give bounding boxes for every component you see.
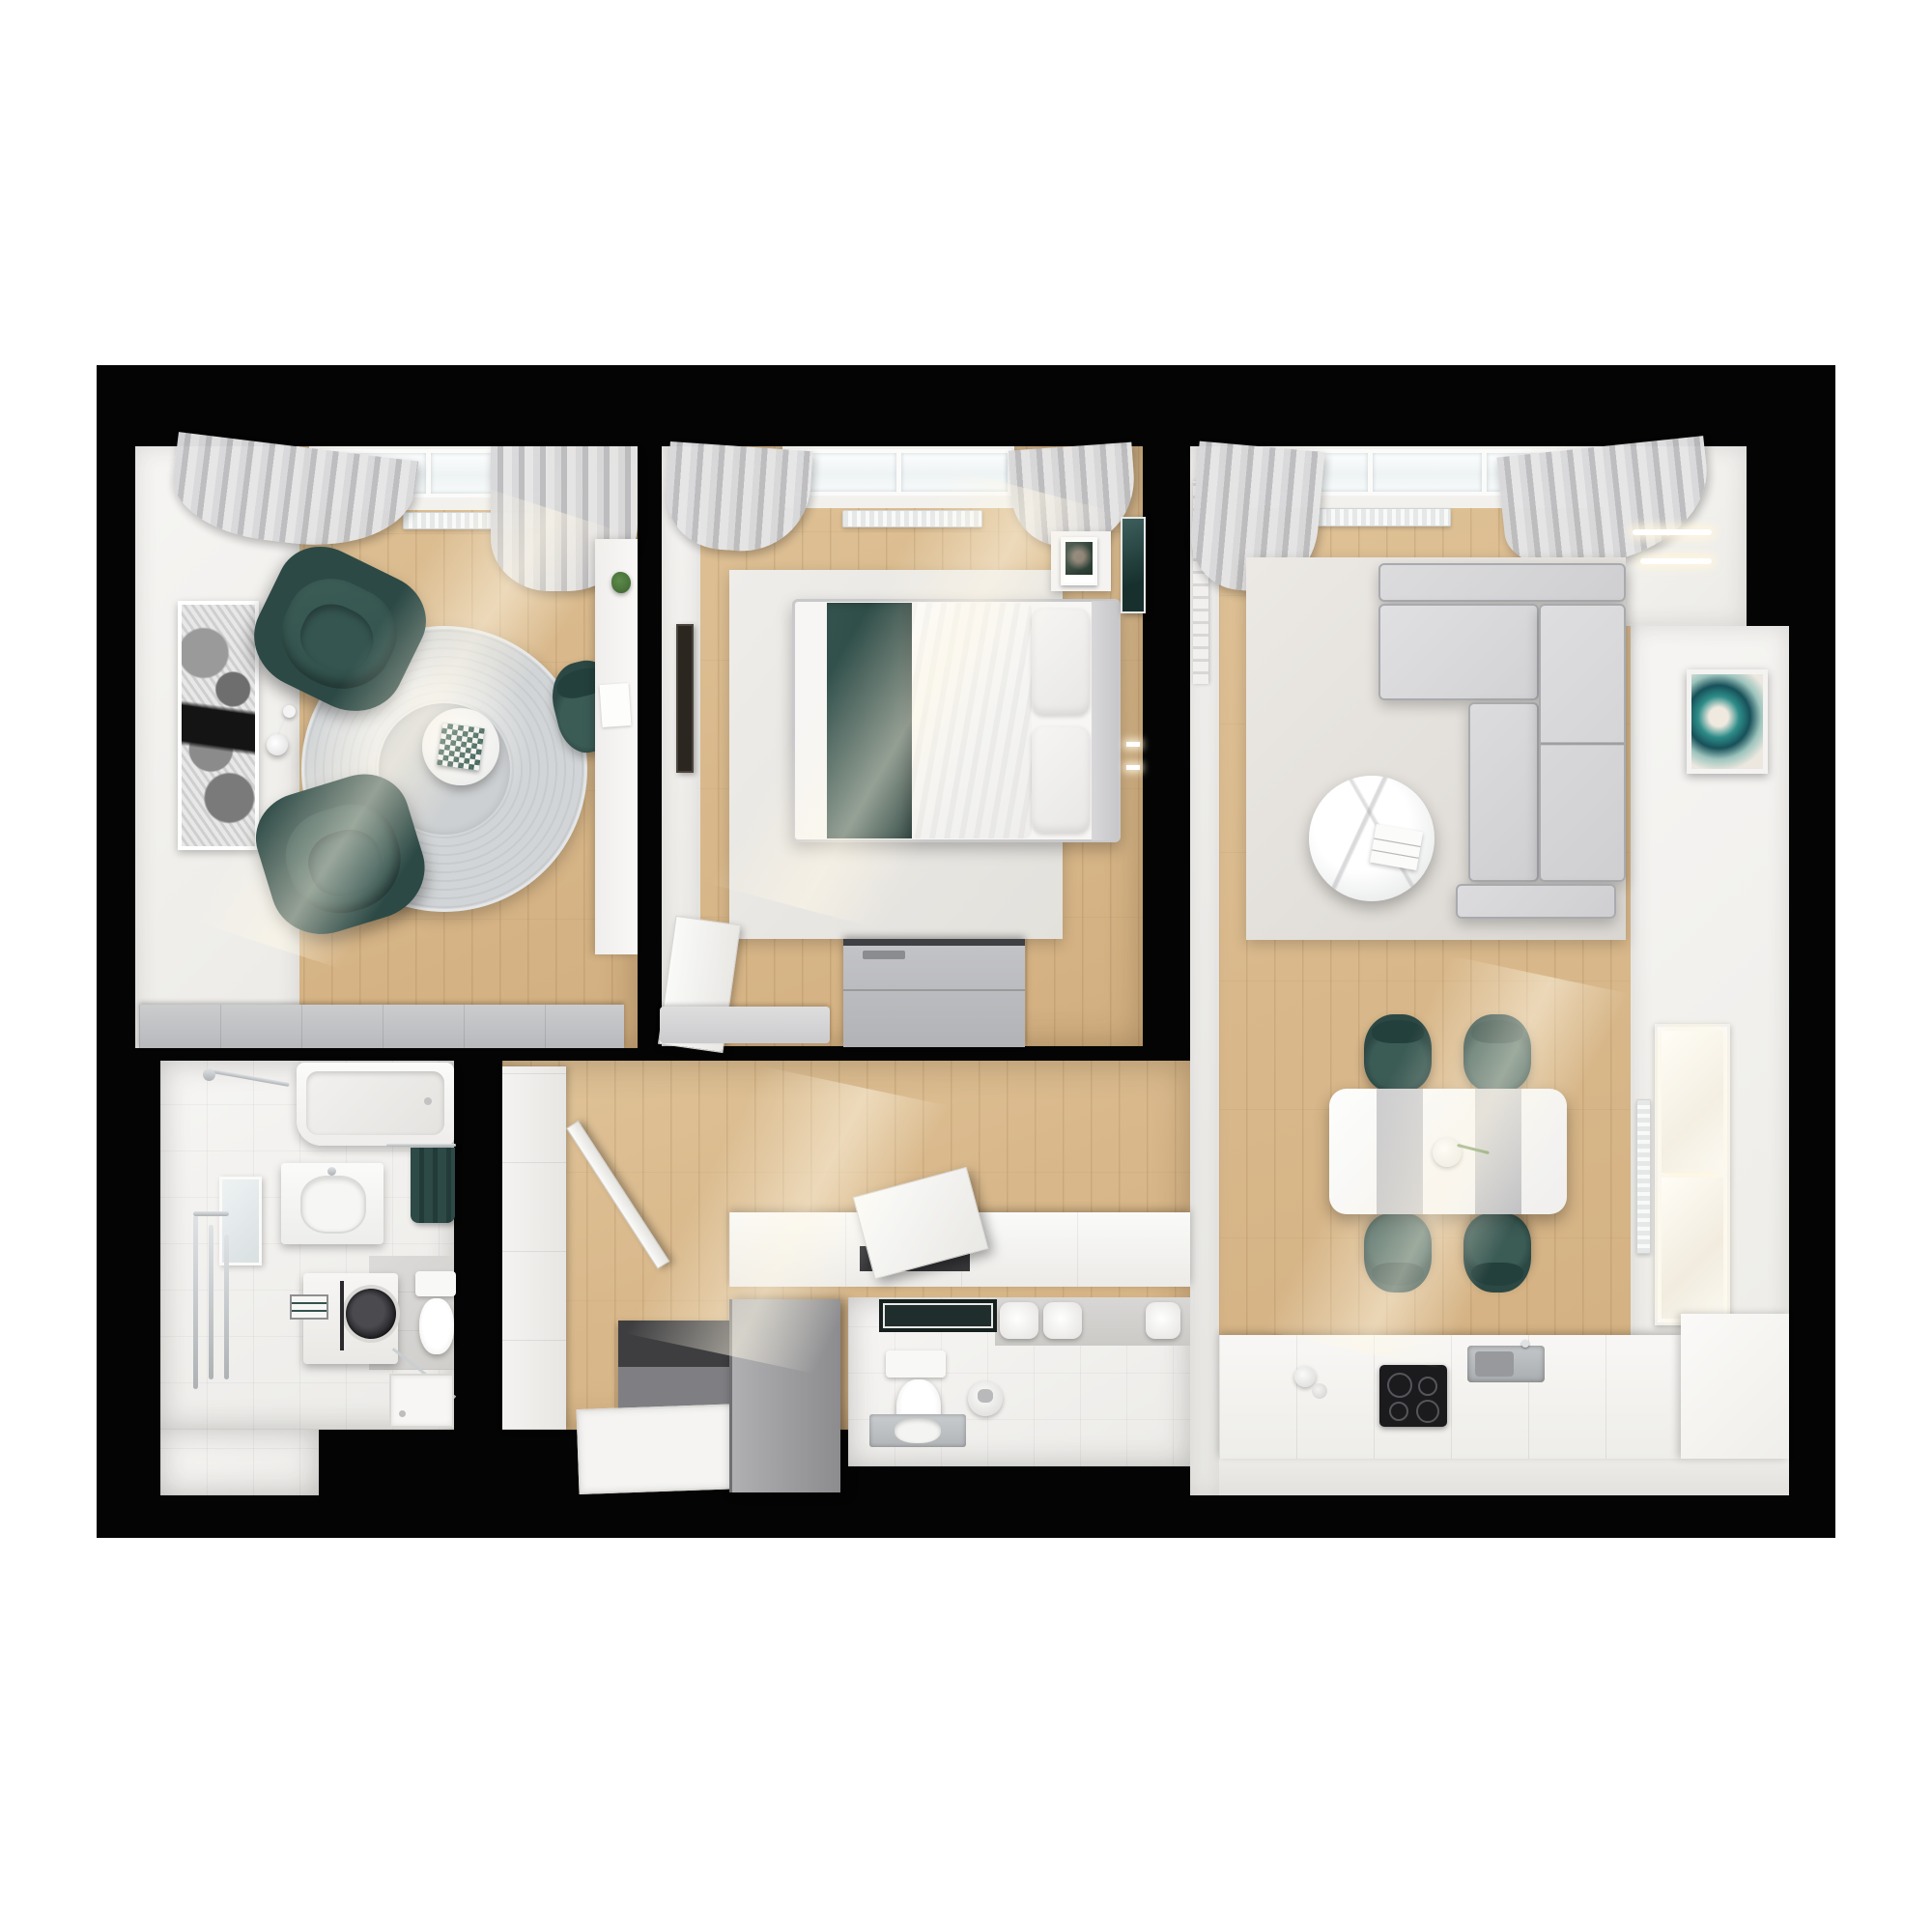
- dresser-top-edge: [843, 939, 1025, 946]
- sofa-back-cushion: [1378, 563, 1626, 602]
- bathtub: [297, 1063, 454, 1146]
- dresser-seam: [843, 989, 1025, 991]
- bathroom-toilet-bowl: [419, 1298, 454, 1354]
- burner-icon: [1387, 1373, 1412, 1398]
- living-wall-sconce: [1633, 529, 1712, 535]
- sofa-bottom-armrest: [1456, 884, 1616, 919]
- apartment-plan: [97, 365, 1835, 1538]
- bedroom-window-sill: [782, 498, 1014, 508]
- washer-drum-icon: [346, 1289, 396, 1339]
- dining-chair: [1364, 1213, 1432, 1293]
- bathroom-toilet-tank: [415, 1271, 456, 1296]
- sofa-corner-seat: [1468, 702, 1539, 882]
- toilet-paper-roll: [1043, 1302, 1082, 1339]
- photo-portrait: [1065, 542, 1093, 575]
- bedroom-wall-art: [1121, 517, 1146, 613]
- abstract-art-graphic: [1691, 674, 1763, 769]
- right-wall-radiator: [1636, 1099, 1651, 1254]
- towel-radiator: [224, 1235, 229, 1379]
- toilet-paper-roll: [1000, 1302, 1038, 1339]
- towel-radiator-bend: [193, 1211, 229, 1216]
- soap-item: [978, 1389, 993, 1403]
- wc-dark-mat: [879, 1299, 997, 1332]
- bed-headboard: [1092, 601, 1119, 840]
- drain-icon: [399, 1410, 406, 1417]
- towel-rail: [386, 1144, 456, 1147]
- burner-icon: [1418, 1377, 1437, 1396]
- doormat-bench: [618, 1321, 730, 1409]
- washer-door-edge: [340, 1281, 344, 1350]
- window-pane: [1662, 1178, 1723, 1320]
- living-wall-art-abstract: [1687, 669, 1768, 774]
- shower-head-icon: [203, 1068, 215, 1081]
- burner-icon: [1416, 1400, 1439, 1423]
- nightstand-photo-frame: [1061, 537, 1097, 585]
- bed-duvet: [912, 603, 1032, 838]
- dining-chair: [1364, 1014, 1432, 1092]
- kitchen-floor-strip: [1219, 1459, 1789, 1495]
- toilet-paper-roll: [1146, 1302, 1180, 1339]
- bed-blanket-green: [827, 603, 912, 838]
- drain-icon: [424, 1097, 432, 1105]
- faucet-icon: [1521, 1340, 1529, 1348]
- kettle-icon: [1294, 1366, 1316, 1387]
- dresser-handle: [863, 951, 905, 959]
- bed-pillow: [1032, 609, 1090, 715]
- desk-papers: [600, 683, 632, 727]
- hanging-towels-teal: [411, 1148, 455, 1223]
- bedroom-side-picture: [676, 624, 694, 773]
- kitchen-counter: [1219, 1335, 1681, 1459]
- lounge-wall-art-map: [178, 601, 259, 850]
- map-art-graphic: [182, 605, 255, 846]
- bedroom-wall-sconce: [1126, 742, 1140, 747]
- sink-bowl: [1475, 1351, 1514, 1377]
- chess-board-icon: [437, 723, 485, 771]
- wc-soap-pedestal: [968, 1381, 1003, 1416]
- entry-door-leaf: [729, 1299, 840, 1492]
- window-pane: [1373, 453, 1483, 492]
- kitchen-counter-return: [1681, 1314, 1789, 1459]
- faucet-icon: [327, 1167, 336, 1176]
- bowl-icon: [1312, 1383, 1327, 1399]
- table-vase: [1433, 1138, 1462, 1167]
- vanity-basin: [300, 1176, 366, 1234]
- bed-foot-bench: [660, 1007, 830, 1043]
- magazine-on-table: [1370, 824, 1423, 870]
- floorplan-canvas: [0, 0, 1932, 1932]
- bed-pillow: [1032, 726, 1090, 833]
- bedroom-dresser: [843, 939, 1025, 1047]
- towel-radiator: [209, 1225, 213, 1379]
- towel-shelf: [290, 1294, 328, 1320]
- living-radiator: [1317, 508, 1451, 526]
- sofa-chaise: [1378, 604, 1539, 700]
- vanity-cabinet: [281, 1163, 384, 1244]
- bedroom-wall-sconce: [1126, 765, 1140, 770]
- floor-lamp-small-shade-icon: [283, 705, 296, 718]
- desk-plant-icon: [611, 572, 631, 593]
- bedroom-radiator: [842, 510, 982, 527]
- towel-radiator: [193, 1215, 198, 1389]
- sofa-right-seats: [1539, 604, 1626, 882]
- lounge-sideboard: [139, 1005, 624, 1048]
- dining-chair: [1463, 1213, 1531, 1293]
- living-wall-sconce: [1640, 558, 1712, 564]
- entry-mat-tray: [577, 1404, 748, 1494]
- wc-basin-bowl: [895, 1418, 941, 1443]
- hall-wardrobe: [502, 1066, 566, 1430]
- bedroom-window: [782, 446, 1014, 498]
- lounge-desk: [595, 539, 638, 954]
- kitchen-sink: [1467, 1346, 1545, 1382]
- window-pane: [1662, 1031, 1723, 1173]
- burner-icon: [1389, 1402, 1408, 1421]
- wc-toilet-tank: [886, 1350, 946, 1378]
- wc-washbasin-tray: [869, 1414, 966, 1447]
- window-pane: [901, 453, 1009, 492]
- cooktop: [1379, 1365, 1447, 1427]
- living-right-window: [1655, 1024, 1730, 1325]
- table-runner: [1377, 1089, 1423, 1214]
- bathroom-floor-annex: [160, 1430, 319, 1495]
- floor-lamp-shade-icon: [267, 734, 288, 755]
- dining-chair: [1463, 1014, 1531, 1092]
- shower-tray: [389, 1374, 454, 1428]
